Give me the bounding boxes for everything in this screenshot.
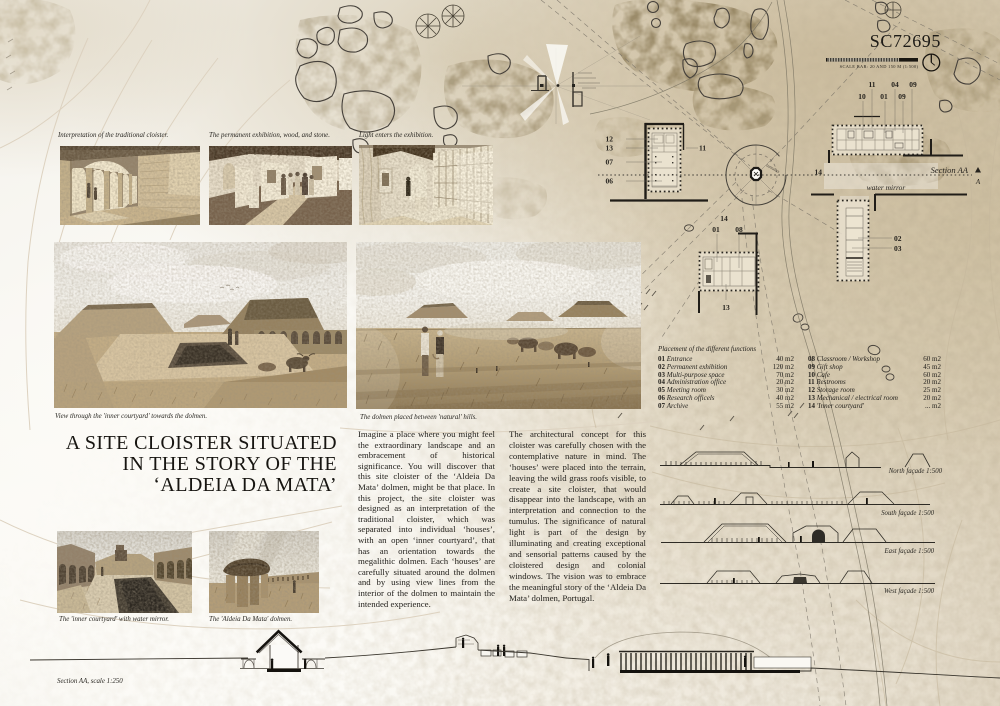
svg-text:water mirror: water mirror [867,183,906,192]
svg-text:12: 12 [606,135,614,144]
svg-text:08: 08 [735,225,743,234]
svg-text:14: 14 [720,214,728,223]
svg-text:07: 07 [606,158,614,167]
svg-text:13: 13 [606,144,614,153]
svg-text:09: 09 [909,80,917,89]
svg-text:01: 01 [880,92,888,101]
svg-text:11: 11 [868,80,875,89]
svg-text:01: 01 [712,225,720,234]
svg-text:tumulus: tumulus [766,163,781,175]
svg-text:SCALE BAR: 20 AND 150 M (1:500: SCALE BAR: 20 AND 150 M (1:500) [840,64,919,69]
svg-text:14: 14 [815,168,823,177]
svg-text:09: 09 [898,92,906,101]
svg-text:11: 11 [699,144,706,153]
svg-text:06: 06 [606,177,614,186]
svg-text:13: 13 [722,303,730,312]
svg-text:A: A [975,178,981,186]
svg-text:04: 04 [891,80,899,89]
svg-text:03: 03 [894,244,902,253]
svg-text:10: 10 [858,92,866,101]
svg-text:02: 02 [894,234,902,243]
svg-text:Section AA: Section AA [931,165,969,175]
